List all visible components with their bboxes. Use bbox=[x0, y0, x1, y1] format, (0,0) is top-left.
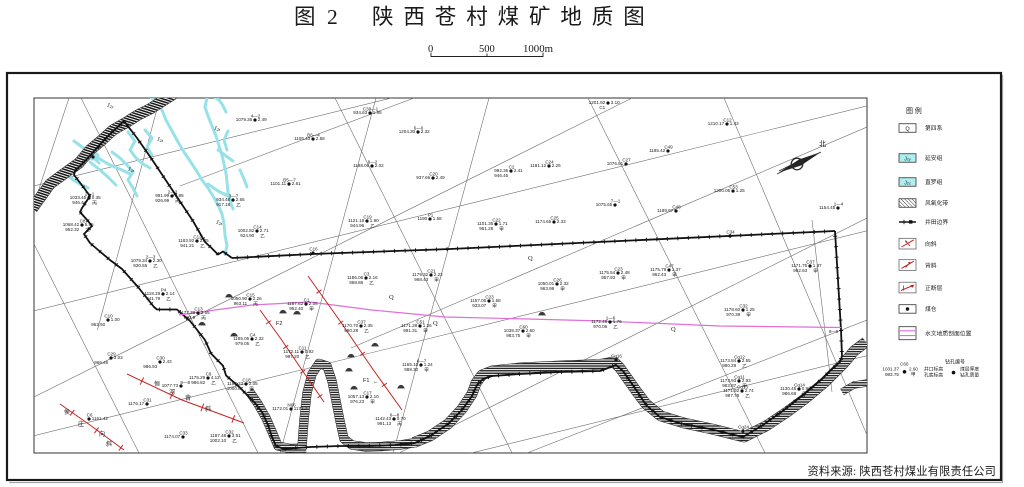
svg-text:1079.36: 1079.36 bbox=[236, 117, 253, 122]
svg-text:1181.12: 1181.12 bbox=[530, 163, 547, 168]
svg-text:J2z: J2z bbox=[157, 137, 164, 143]
svg-text:Cq16: Cq16 bbox=[611, 353, 622, 358]
svg-text:F2: F2 bbox=[276, 321, 282, 327]
svg-text:1200.05: 1200.05 bbox=[714, 188, 731, 193]
svg-text:1105.43: 1105.43 bbox=[294, 136, 311, 141]
svg-text:983.9: 983.9 bbox=[184, 315, 196, 320]
svg-text:1077.73: 1077.73 bbox=[162, 383, 179, 388]
svg-text:1000m: 1000m bbox=[523, 43, 554, 55]
svg-text:乙: 乙 bbox=[742, 362, 747, 368]
svg-text:资料来源: 陕西苍村煤业有限责任公司: 资料来源: 陕西苍村煤业有限责任公司 bbox=[807, 464, 996, 478]
svg-text:500: 500 bbox=[479, 44, 495, 55]
svg-text:3.03: 3.03 bbox=[114, 355, 123, 360]
svg-text:乙: 乙 bbox=[236, 201, 241, 207]
svg-text:930.55: 930.55 bbox=[133, 263, 147, 268]
svg-text:陕西苍村煤矿地质图: 陕西苍村煤矿地质图 bbox=[372, 5, 655, 29]
svg-text:983.75: 983.75 bbox=[506, 333, 520, 338]
svg-text:987.78: 987.78 bbox=[725, 393, 739, 398]
svg-text:乙: 乙 bbox=[255, 340, 260, 346]
svg-text:乙: 乙 bbox=[153, 262, 158, 268]
svg-text:946.45: 946.45 bbox=[494, 173, 508, 178]
svg-text:1031.37: 1031.37 bbox=[882, 367, 899, 372]
svg-text:Q: Q bbox=[671, 326, 676, 333]
svg-text:风氧化带: 风氧化带 bbox=[925, 199, 948, 207]
svg-text:河: 河 bbox=[169, 388, 175, 396]
svg-text:向: 向 bbox=[99, 430, 105, 438]
svg-text:962.63: 962.63 bbox=[793, 268, 807, 273]
svg-text:第四系: 第四系 bbox=[925, 124, 943, 132]
svg-text:←: ← bbox=[373, 379, 379, 385]
svg-text:北: 北 bbox=[819, 140, 826, 148]
svg-text:3.10: 3.10 bbox=[611, 100, 620, 105]
svg-text:968.43: 968.43 bbox=[414, 277, 428, 282]
svg-text:乙: 乙 bbox=[200, 242, 205, 248]
svg-text:962.43: 962.43 bbox=[652, 272, 666, 277]
svg-text:926.99: 926.99 bbox=[155, 198, 169, 203]
svg-text:C31: C31 bbox=[143, 397, 152, 402]
svg-text:2.32: 2.32 bbox=[421, 129, 430, 134]
svg-text:962.50: 962.50 bbox=[91, 322, 105, 327]
svg-text:C27: C27 bbox=[622, 157, 631, 162]
svg-text:944.96: 944.96 bbox=[350, 223, 364, 228]
svg-text:988.30: 988.30 bbox=[404, 367, 418, 372]
svg-text:952.32: 952.32 bbox=[65, 227, 79, 232]
svg-text:976.23: 976.23 bbox=[350, 399, 364, 404]
svg-text:向斜: 向斜 bbox=[925, 240, 937, 248]
svg-text:934.63: 934.63 bbox=[353, 110, 367, 115]
svg-text:957.93: 957.93 bbox=[601, 275, 615, 280]
svg-text:1.00: 1.00 bbox=[111, 317, 120, 322]
svg-text:钻孔编号: 钻孔编号 bbox=[945, 359, 965, 366]
svg-text:1—4: 1—4 bbox=[834, 201, 844, 206]
svg-text:乙: 乙 bbox=[232, 437, 237, 443]
svg-text:乙: 乙 bbox=[260, 232, 265, 238]
svg-text:1172.01: 1172.01 bbox=[272, 406, 289, 411]
svg-text:1.58: 1.58 bbox=[433, 216, 442, 221]
svg-text:2.49: 2.49 bbox=[436, 175, 445, 180]
svg-text:991.31: 991.31 bbox=[403, 328, 417, 333]
svg-text:941.79: 941.79 bbox=[146, 296, 160, 301]
svg-text:986.68: 986.68 bbox=[782, 391, 796, 396]
svg-text:图 例: 图 例 bbox=[906, 106, 922, 115]
svg-text:正断层: 正断层 bbox=[925, 284, 943, 292]
svg-text:Cq24: Cq24 bbox=[738, 424, 749, 429]
svg-text:952.40: 952.40 bbox=[289, 306, 303, 311]
svg-text:1.25: 1.25 bbox=[736, 188, 745, 193]
svg-text:C33: C33 bbox=[179, 430, 188, 435]
svg-text:1101.11: 1101.11 bbox=[270, 181, 286, 186]
svg-text:乙: 乙 bbox=[211, 379, 216, 385]
svg-text:Q: Q bbox=[905, 126, 910, 132]
svg-text:1.95: 1.95 bbox=[373, 110, 382, 115]
svg-text:1076.61: 1076.61 bbox=[607, 161, 624, 166]
svg-text:C16: C16 bbox=[309, 246, 318, 251]
svg-text:钻孔质量: 钻孔质量 bbox=[960, 372, 979, 379]
svg-text:井口标高: 井口标高 bbox=[924, 366, 943, 373]
svg-text:8—8 986.82: 8—8 986.82 bbox=[180, 380, 205, 385]
svg-text:1171.7: 1171.7 bbox=[294, 406, 308, 411]
svg-text:986.93: 986.93 bbox=[143, 364, 157, 369]
svg-text:2.33: 2.33 bbox=[557, 219, 566, 224]
svg-text:1198.06: 1198.06 bbox=[353, 163, 370, 168]
svg-text:1185.42: 1185.42 bbox=[649, 148, 666, 153]
svg-text:背: 背 bbox=[185, 394, 191, 402]
svg-text:1075.65: 1075.65 bbox=[596, 202, 613, 207]
svg-text:1.43: 1.43 bbox=[730, 121, 739, 126]
svg-text:孔底标高: 孔底标高 bbox=[924, 372, 943, 379]
svg-text:J2z: J2z bbox=[214, 126, 221, 132]
svg-text:恒: 恒 bbox=[154, 380, 160, 388]
svg-text:970.06: 970.06 bbox=[593, 324, 607, 329]
svg-text:斜: 斜 bbox=[205, 405, 211, 413]
svg-text:8—9: 8—9 bbox=[829, 329, 839, 334]
svg-text:937.66: 937.66 bbox=[416, 175, 430, 180]
svg-text:2.43: 2.43 bbox=[163, 359, 172, 364]
svg-text:延安组: 延安组 bbox=[925, 154, 943, 162]
svg-text:乙: 乙 bbox=[745, 392, 750, 398]
svg-text:乙: 乙 bbox=[364, 327, 369, 333]
svg-text:1190: 1190 bbox=[417, 216, 427, 221]
svg-text:990.28: 990.28 bbox=[344, 328, 358, 333]
svg-text:1161.42: 1161.42 bbox=[92, 416, 109, 421]
svg-text:946.44: 946.44 bbox=[72, 200, 86, 205]
svg-text:963.98: 963.98 bbox=[540, 286, 554, 291]
svg-text:庄: 庄 bbox=[78, 420, 84, 428]
svg-text:2: 2 bbox=[327, 5, 338, 29]
svg-text:2.25: 2.25 bbox=[552, 163, 561, 168]
svg-text:2.41: 2.41 bbox=[514, 168, 523, 173]
svg-text:1174.66: 1174.66 bbox=[535, 219, 552, 224]
svg-text:Q: Q bbox=[528, 255, 533, 262]
svg-text:2.58: 2.58 bbox=[316, 136, 325, 141]
svg-text:2.49: 2.49 bbox=[258, 117, 267, 122]
svg-text:2.60: 2.60 bbox=[909, 367, 918, 372]
svg-text:J2z: J2z bbox=[216, 220, 223, 226]
svg-text:933.07: 933.07 bbox=[472, 303, 486, 308]
svg-text:Q: Q bbox=[389, 294, 394, 301]
svg-text:979.05: 979.05 bbox=[235, 341, 249, 346]
svg-text:1189.97: 1189.97 bbox=[657, 208, 674, 213]
svg-text:Q: Q bbox=[433, 320, 438, 327]
svg-text:乙: 乙 bbox=[85, 226, 90, 232]
svg-text:图: 图 bbox=[294, 5, 316, 29]
svg-text:C49: C49 bbox=[664, 144, 673, 149]
svg-text:963.11: 963.11 bbox=[234, 301, 248, 306]
svg-text:1204.30: 1204.30 bbox=[399, 129, 416, 134]
svg-text:乙: 乙 bbox=[369, 279, 374, 285]
svg-text:951.28: 951.28 bbox=[479, 226, 493, 231]
svg-text:乙: 乙 bbox=[370, 222, 375, 228]
svg-text:917.18: 917.18 bbox=[216, 202, 230, 207]
svg-text:980.28: 980.28 bbox=[722, 363, 736, 368]
svg-text:997.20: 997.20 bbox=[285, 354, 299, 359]
svg-text:970.39: 970.39 bbox=[726, 312, 740, 317]
svg-text:1000.07: 1000.07 bbox=[227, 386, 244, 391]
svg-text:煤层厚度: 煤层厚度 bbox=[960, 366, 979, 373]
svg-text:乙: 乙 bbox=[305, 353, 310, 359]
svg-text:井田边界: 井田边界 bbox=[925, 218, 948, 226]
svg-text:水文地质剖面位置: 水文地质剖面位置 bbox=[925, 329, 972, 337]
svg-text:侯: 侯 bbox=[64, 408, 70, 416]
svg-text:F1: F1 bbox=[363, 378, 369, 384]
svg-text:C34: C34 bbox=[726, 229, 735, 234]
svg-text:991.13: 991.13 bbox=[377, 421, 391, 426]
svg-text:背斜: 背斜 bbox=[925, 262, 937, 270]
svg-text:煤仓: 煤仓 bbox=[925, 305, 937, 313]
svg-text:直罗组: 直罗组 bbox=[925, 178, 943, 186]
svg-text:2.61: 2.61 bbox=[292, 181, 301, 186]
svg-text:983.75: 983.75 bbox=[885, 372, 899, 377]
svg-text:C48: C48 bbox=[672, 204, 681, 209]
svg-text:1176.17: 1176.17 bbox=[128, 401, 145, 406]
svg-text:924.90: 924.90 bbox=[240, 233, 254, 238]
svg-text:966.46: 966.46 bbox=[94, 360, 108, 365]
svg-text:1174.07: 1174.07 bbox=[164, 434, 181, 439]
svg-text:1210.17: 1210.17 bbox=[708, 121, 725, 126]
svg-text:J2z: J2z bbox=[128, 167, 135, 173]
svg-text:乙: 乙 bbox=[166, 295, 171, 301]
svg-text:941.21: 941.21 bbox=[180, 243, 194, 248]
svg-text:C60: C60 bbox=[900, 362, 909, 367]
svg-text:J2y: J2y bbox=[107, 103, 114, 109]
svg-text:斜: 斜 bbox=[106, 440, 112, 448]
svg-text:1154.45: 1154.45 bbox=[819, 205, 836, 210]
svg-text:968.86: 968.86 bbox=[349, 280, 363, 285]
svg-text:C1: C1 bbox=[599, 105, 605, 110]
svg-text:1002.10: 1002.10 bbox=[210, 438, 227, 443]
svg-text:7—1: 7—1 bbox=[611, 198, 621, 203]
svg-text:乙: 乙 bbox=[613, 323, 618, 329]
svg-text:2.02: 2.02 bbox=[375, 163, 384, 168]
